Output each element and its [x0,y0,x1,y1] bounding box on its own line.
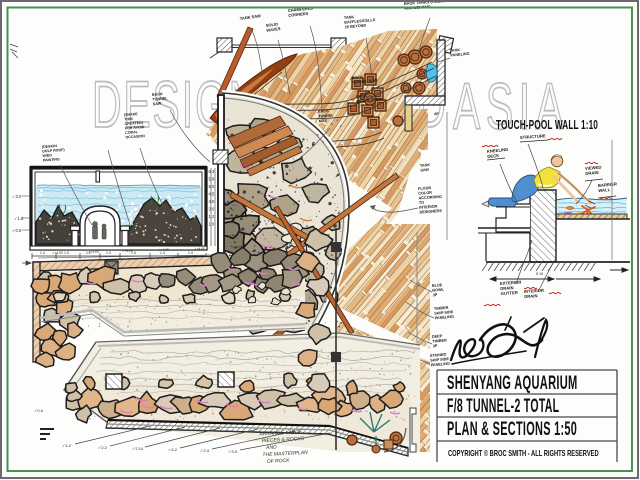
svg-text:COPYRIGHT © BROC SMITH - ALL R: COPYRIGHT © BROC SMITH - ALL RIGHTS RESE… [448,449,599,458]
svg-text:✓+4.60: ✓+4.60 [158,248,169,252]
svg-text:5·10: 5·10 [536,272,543,276]
svg-text:✓+4.60: ✓+4.60 [232,245,243,249]
svg-text:1.0: 1.0 [106,251,111,255]
svg-text:✓+4.60: ✓+4.60 [52,251,63,255]
svg-text:TOUCH-POOL WALL 1:10: TOUCH-POOL WALL 1:10 [496,118,598,132]
svg-text:3P: 3P [433,344,438,348]
svg-text:✓2.14: ✓2.14 [132,446,144,451]
svg-text:SHENYANG AQUARIUM: SHENYANG AQUARIUM [447,373,578,394]
svg-text:WALL: WALL [598,187,611,193]
svg-text:F/8 TUNNEL-2 TOTAL: F/8 TUNNEL-2 TOTAL [447,396,559,417]
svg-text:✓3.0: ✓3.0 [228,449,238,454]
svg-text:TO: TO [419,201,425,205]
svg-text:✓+4.60: ✓+4.60 [282,243,293,247]
svg-text:AND: AND [265,444,277,451]
svg-text:1.4: 1.4 [40,251,45,255]
svg-text:SAW: SAW [153,102,162,107]
svg-text:MAX: MAX [319,119,328,124]
svg-text:✓+4.60: ✓+4.60 [122,249,133,253]
svg-text:✓+4.60: ✓+4.60 [88,250,99,254]
svg-text:✓2.4: ✓2.4 [200,448,210,453]
svg-text:✓4.2: ✓4.2 [168,447,178,452]
svg-text:1.4: 1.4 [188,251,193,255]
svg-text:DRAIN: DRAIN [524,293,538,299]
svg-text:PLAN & SECTIONS 1:50: PLAN & SECTIONS 1:50 [447,419,577,440]
svg-text:3P: 3P [433,293,438,297]
svg-text:OF ROCK: OF ROCK [267,458,291,465]
svg-text:1.0: 1.0 [64,251,69,255]
svg-text:✓0.0: ✓0.0 [34,408,44,413]
svg-text:4P: 4P [434,111,439,116]
svg-text:✓2.2: ✓2.2 [98,445,108,450]
svg-text:✓3.0: ✓3.0 [12,194,22,199]
svg-text:✓0.6: ✓0.6 [12,228,22,233]
svg-text:✓+4.60: ✓+4.60 [194,247,205,251]
svg-text:✓1.5: ✓1.5 [14,216,24,221]
svg-text:✓4.2: ✓4.2 [62,443,72,448]
